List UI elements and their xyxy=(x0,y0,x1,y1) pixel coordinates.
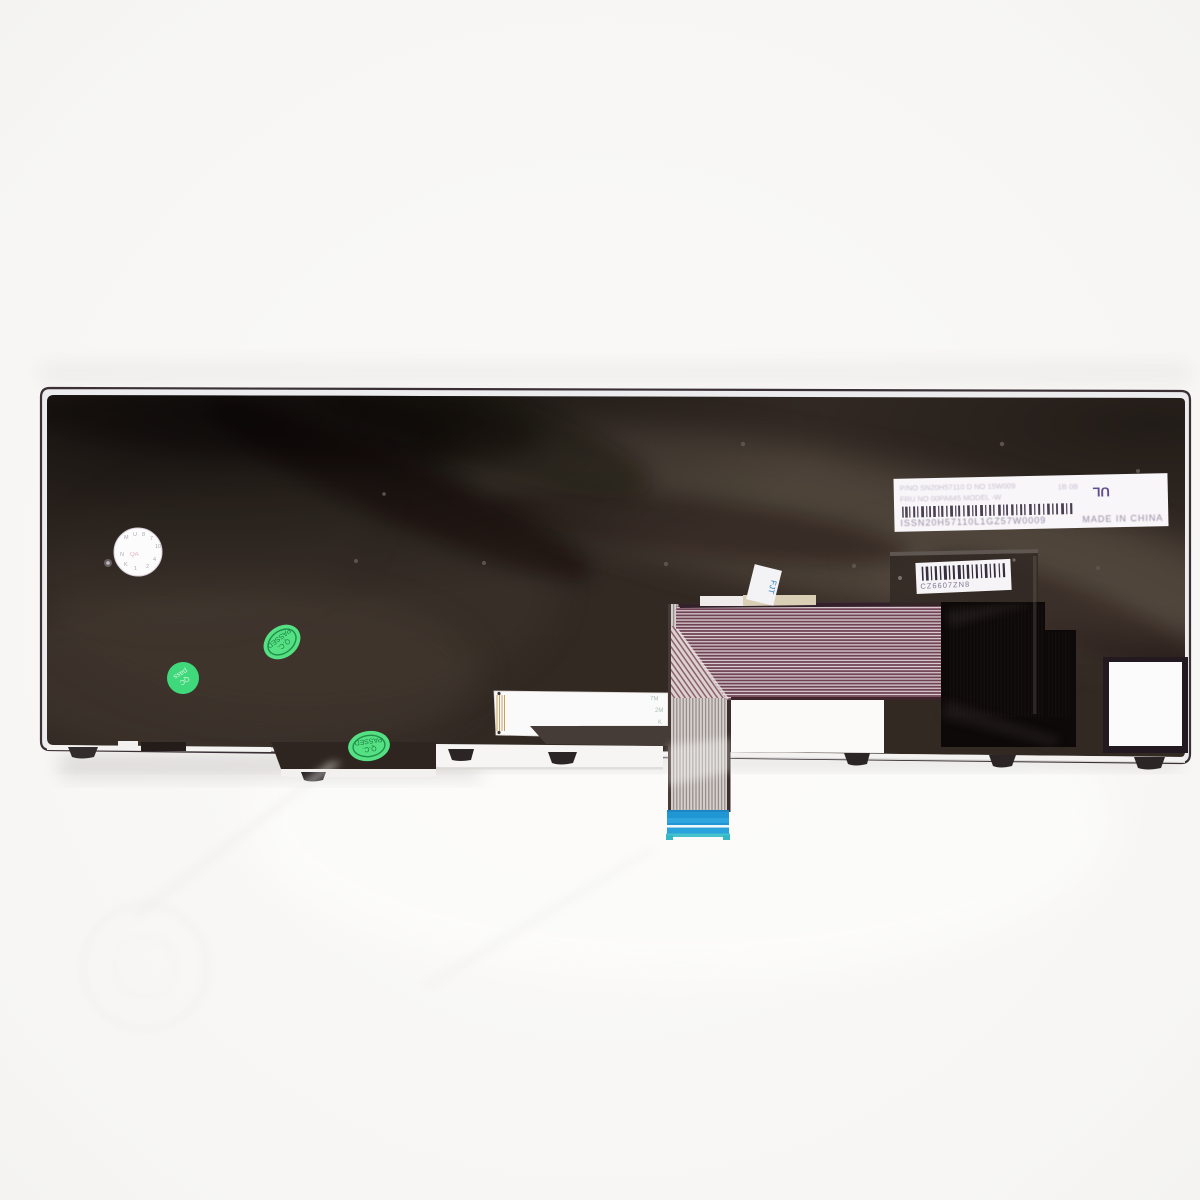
svg-text:K: K xyxy=(658,720,662,726)
svg-text:2M: 2M xyxy=(655,708,663,714)
svg-text:K: K xyxy=(124,562,128,568)
svg-text:U: U xyxy=(133,532,137,538)
svg-text:1B 0B: 1B 0B xyxy=(1058,482,1079,491)
svg-text:7: 7 xyxy=(150,536,153,542)
svg-text:QA: QA xyxy=(130,552,139,558)
svg-text:N: N xyxy=(120,552,124,558)
svg-text:MADE IN CHINA: MADE IN CHINA xyxy=(1082,513,1163,525)
svg-text:UL: UL xyxy=(1092,484,1110,499)
svg-text:10: 10 xyxy=(155,544,161,550)
svg-text:4: 4 xyxy=(153,557,156,563)
svg-text:7M: 7M xyxy=(650,696,659,702)
svg-text:2: 2 xyxy=(146,564,149,570)
svg-text:1: 1 xyxy=(134,566,137,572)
svg-text:8: 8 xyxy=(142,532,145,538)
svg-text:M: M xyxy=(124,535,129,541)
